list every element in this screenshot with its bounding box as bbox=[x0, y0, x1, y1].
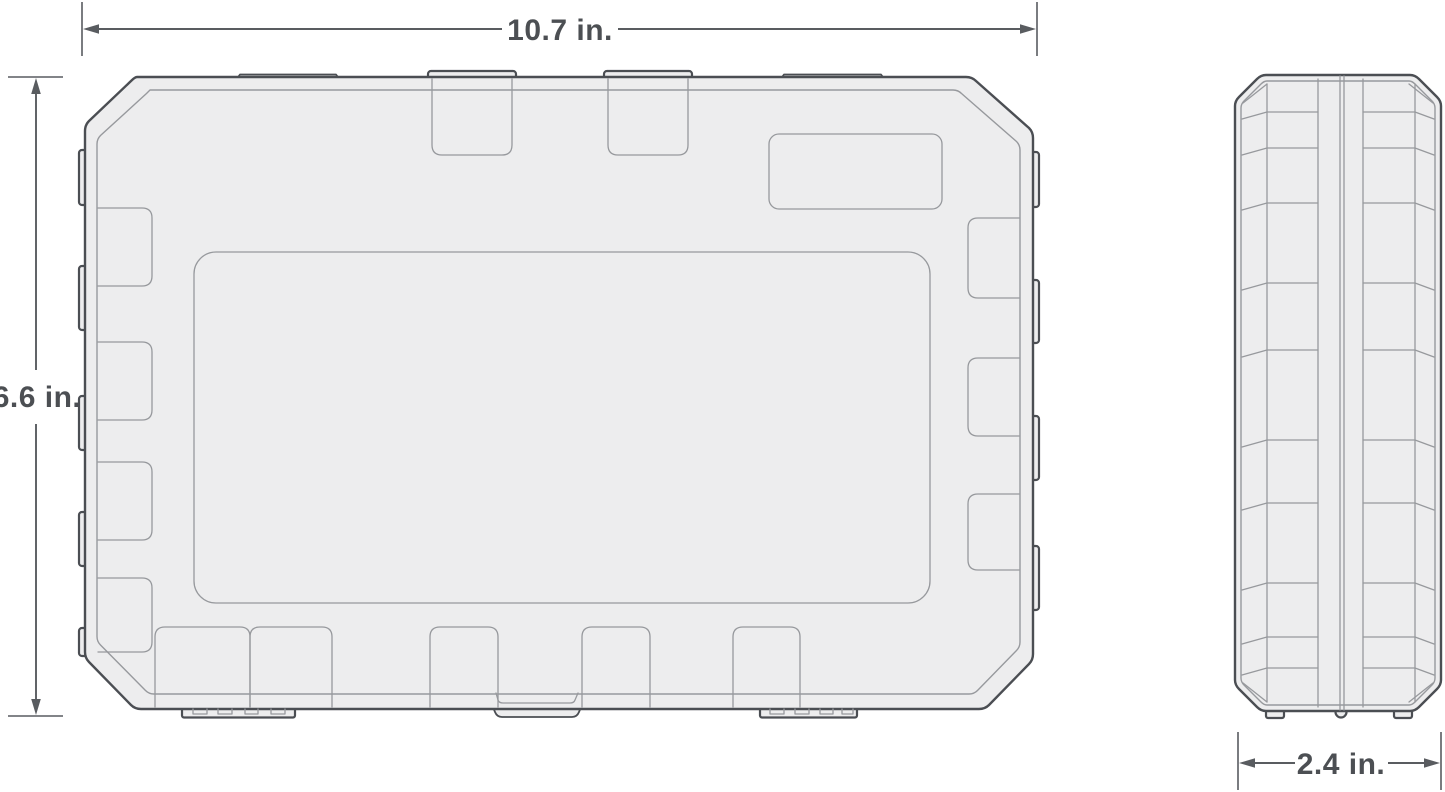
case-outline bbox=[85, 77, 1033, 709]
arrowhead-up bbox=[31, 78, 41, 94]
dimension-label-height: 6.6 in. bbox=[0, 381, 81, 414]
arrowhead-right bbox=[1020, 24, 1036, 34]
dimension-label-depth: 2.4 in. bbox=[1297, 748, 1386, 781]
case-side-view bbox=[1235, 75, 1441, 718]
arrowhead-left bbox=[83, 24, 99, 34]
arrowhead-right bbox=[1424, 758, 1440, 768]
drawing-canvas: 10.7 in. 6.6 in. 2.4 in. bbox=[0, 0, 1445, 792]
arrowhead-left bbox=[1239, 758, 1255, 768]
side-outline bbox=[1235, 75, 1441, 711]
height-dimension: 6.6 in. bbox=[0, 77, 81, 716]
width-dimension: 10.7 in. bbox=[82, 2, 1037, 56]
arrowhead-down bbox=[31, 699, 41, 715]
depth-dimension: 2.4 in. bbox=[1238, 732, 1441, 790]
case-front-view bbox=[79, 71, 1039, 718]
dimension-drawing: 10.7 in. 6.6 in. 2.4 in. bbox=[0, 0, 1445, 792]
dimension-label-width: 10.7 in. bbox=[507, 14, 613, 47]
